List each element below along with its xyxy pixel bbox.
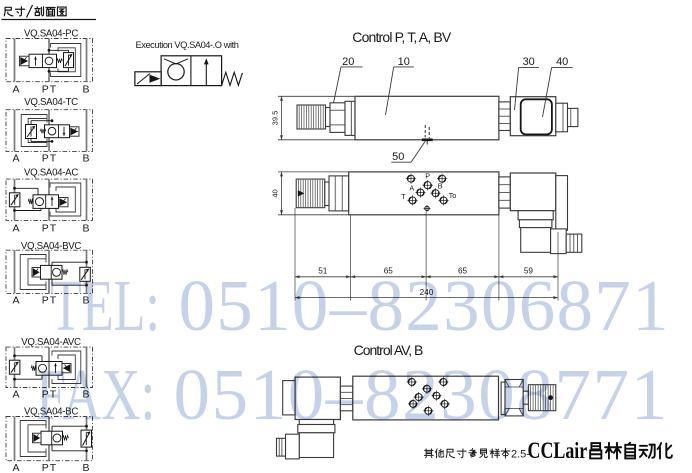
svg-text:PT: PT bbox=[42, 84, 57, 96]
svg-text:A: A bbox=[12, 84, 19, 96]
svg-text:B: B bbox=[82, 84, 89, 96]
svg-text:P: P bbox=[425, 172, 430, 181]
svg-text:T: T bbox=[401, 192, 406, 201]
svg-text:20: 20 bbox=[342, 56, 354, 68]
svg-text:B: B bbox=[82, 462, 89, 473]
svg-text:40: 40 bbox=[556, 56, 568, 68]
svg-text:VQ.SA04-AC: VQ.SA04-AC bbox=[24, 168, 78, 179]
svg-text:To: To bbox=[449, 191, 457, 200]
svg-text:Execution VQ.SA04-.O with: Execution VQ.SA04-.O with bbox=[136, 40, 239, 50]
svg-text:CCLair: CCLair bbox=[528, 439, 588, 464]
svg-text:50: 50 bbox=[392, 151, 404, 163]
svg-text:FAX:: FAX: bbox=[36, 354, 155, 435]
svg-text:B: B bbox=[82, 223, 89, 235]
svg-text:A: A bbox=[12, 389, 19, 401]
svg-text:A: A bbox=[12, 462, 19, 473]
svg-text:B: B bbox=[438, 182, 443, 191]
svg-text:A: A bbox=[12, 153, 19, 165]
svg-text:Control P, T, A, BV: Control P, T, A, BV bbox=[352, 29, 452, 45]
svg-text:10: 10 bbox=[398, 56, 410, 68]
svg-text:B: B bbox=[82, 153, 89, 165]
svg-text:VQ.SA04-PC: VQ.SA04-PC bbox=[24, 29, 78, 40]
svg-text:TEL:: TEL: bbox=[50, 264, 160, 346]
svg-text:A: A bbox=[409, 183, 414, 192]
svg-text:39.5: 39.5 bbox=[271, 111, 280, 126]
svg-text:30: 30 bbox=[523, 56, 535, 68]
svg-text:PT: PT bbox=[42, 223, 57, 235]
svg-text:0510–82306871: 0510–82306871 bbox=[179, 265, 670, 346]
svg-text:40: 40 bbox=[271, 189, 280, 197]
svg-text:A: A bbox=[12, 295, 19, 307]
svg-text:PT: PT bbox=[42, 153, 57, 165]
svg-text:A: A bbox=[12, 223, 19, 235]
svg-text:0510–82308771: 0510–82308771 bbox=[174, 354, 669, 435]
svg-text:VQ.SA04-TC: VQ.SA04-TC bbox=[24, 97, 78, 108]
svg-text:PT: PT bbox=[42, 462, 57, 473]
